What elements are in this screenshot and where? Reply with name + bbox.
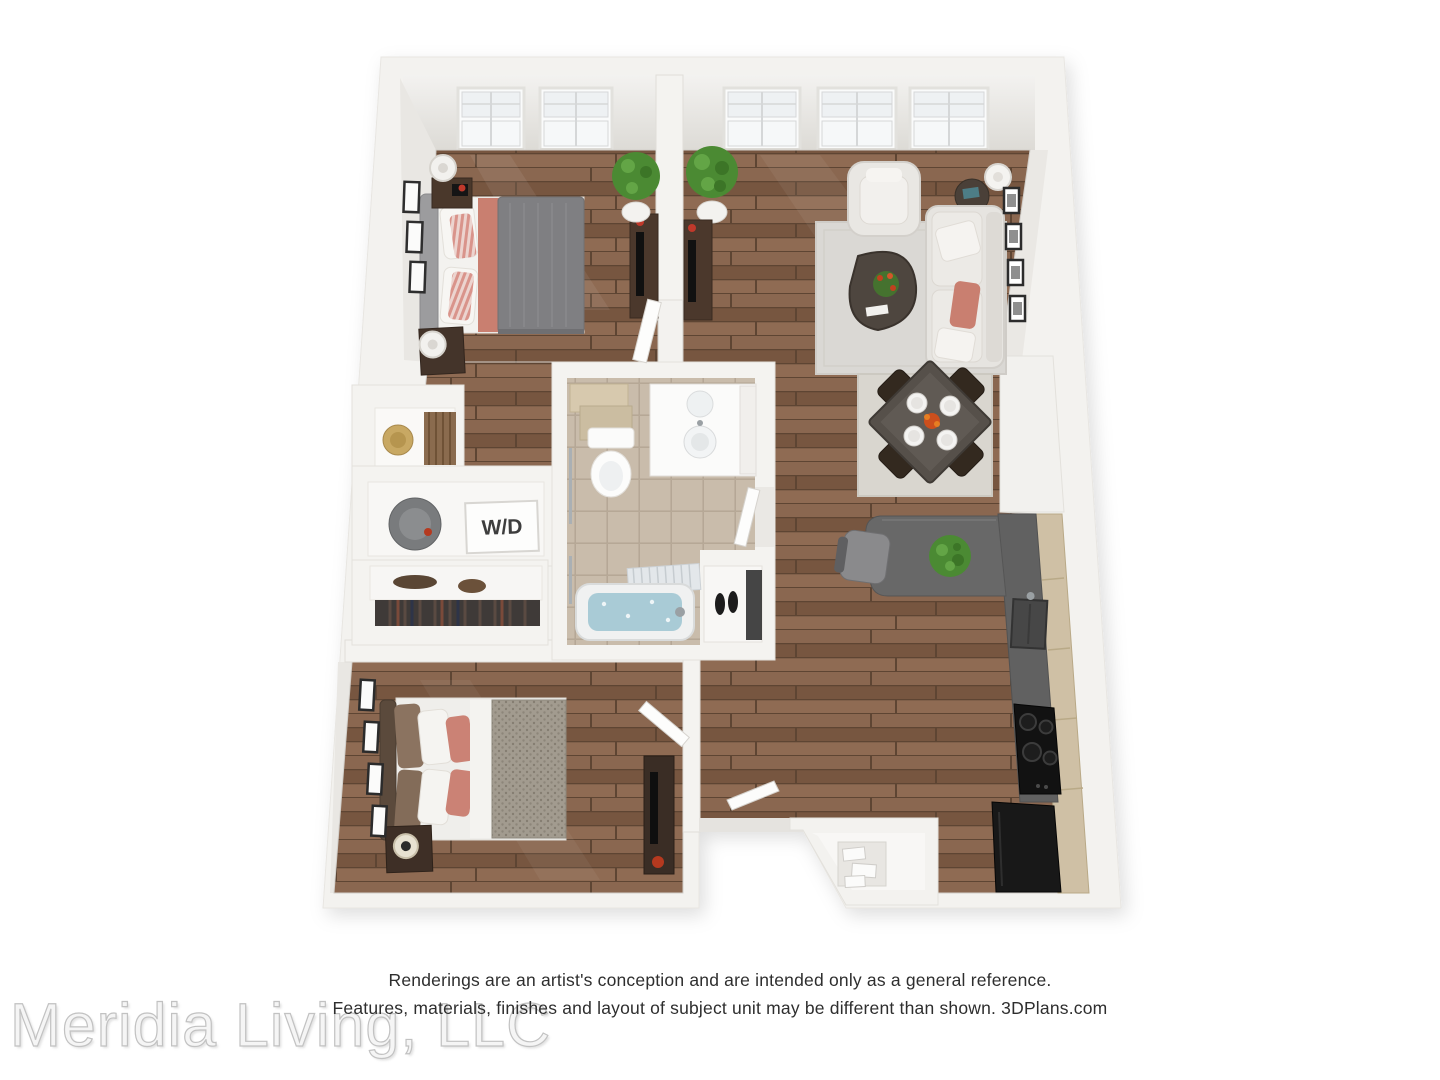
toilet-icon xyxy=(588,428,634,497)
wardrobe-closet xyxy=(352,560,548,645)
window-icon xyxy=(724,88,800,152)
sofa xyxy=(926,206,1004,368)
north-wall xyxy=(403,75,1035,152)
water-heater-icon xyxy=(389,498,441,550)
dresser-tv xyxy=(644,756,674,874)
page: W/D xyxy=(0,0,1440,1080)
armchair xyxy=(848,162,920,236)
shoe-closet xyxy=(704,566,762,642)
window-icon xyxy=(458,88,524,152)
floor-lamp-icon xyxy=(985,164,1011,190)
nightstand xyxy=(419,327,465,375)
shoe-box xyxy=(845,875,866,887)
tv-icon xyxy=(636,232,644,296)
disclaimer-line-1: Renderings are an artist's conception an… xyxy=(0,966,1440,994)
bed xyxy=(420,194,584,334)
shoe-box xyxy=(842,847,865,861)
towel-bar xyxy=(569,556,572,604)
floor-plan-rendering: W/D xyxy=(0,0,1440,1080)
dining-area xyxy=(858,360,992,496)
clutch-bag xyxy=(458,579,486,593)
disclaimer: Renderings are an artist's conception an… xyxy=(0,966,1440,1022)
window-icon xyxy=(910,88,988,152)
kitchen-sink-icon xyxy=(1011,591,1048,649)
bathtub-icon xyxy=(576,584,694,640)
entry-threshold xyxy=(699,818,803,832)
washer-dryer-unit: W/D xyxy=(465,501,539,553)
disclaimer-line-2: Features, materials, finishes and layout… xyxy=(0,994,1440,1022)
tv-icon xyxy=(688,240,696,302)
window-icon xyxy=(540,88,612,152)
bed xyxy=(380,698,566,840)
right-wall-block xyxy=(1000,356,1064,512)
stove-icon xyxy=(1014,704,1061,794)
towel-bar xyxy=(569,448,572,524)
nightstand xyxy=(385,825,433,873)
bathroom xyxy=(552,362,775,660)
window-icon xyxy=(818,88,896,152)
clutch-bag xyxy=(393,575,437,589)
plant-icon xyxy=(929,535,971,577)
centerpiece xyxy=(924,413,940,429)
washer-dryer-label: W/D xyxy=(481,515,523,539)
coral-fold xyxy=(478,198,500,332)
gray-duvet xyxy=(498,197,584,333)
knit-blanket xyxy=(492,700,566,838)
media-console xyxy=(684,220,712,320)
laundry-closet: W/D xyxy=(352,466,552,566)
bedroom1-living-partition xyxy=(656,75,683,300)
tv-icon xyxy=(650,772,658,844)
vanity-sink xyxy=(650,384,756,476)
